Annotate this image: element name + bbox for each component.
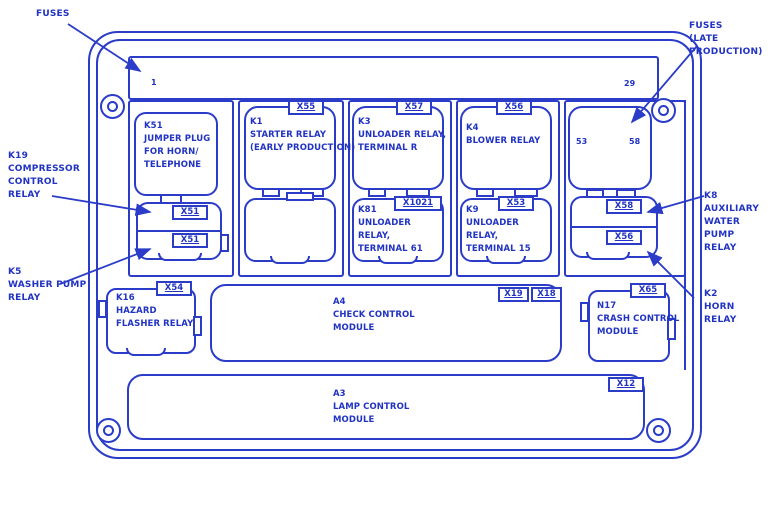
fuse-box-diagram: 1 29 K51 JUMPER PLUG FOR HORN/ TELEPHONE… <box>0 0 770 511</box>
relay-k16-label: K16 HAZARD FLASHER RELAY <box>116 292 193 331</box>
relay-foot <box>368 188 386 197</box>
relay-k4-label: K4 BLOWER RELAY <box>466 122 540 148</box>
relay-bottom-bump <box>270 256 310 264</box>
connector-tag-x56-horn: X56 <box>606 230 642 245</box>
connector-tag-x54: X54 <box>156 281 192 296</box>
relay-bottom-bump <box>378 256 418 264</box>
relay-foot <box>586 189 604 198</box>
screw-icon <box>100 94 125 119</box>
connector-tag-x51-upper: X51 <box>172 205 208 220</box>
connector-tag-x1021: X1021 <box>394 196 442 211</box>
connector-tag-x58: X58 <box>606 199 642 214</box>
relay-bottom-bump <box>126 348 166 356</box>
module-a4-label: A4 CHECK CONTROL MODULE <box>333 296 415 335</box>
module-side-tab <box>98 300 107 318</box>
relay-k9-label: K9 UNLOADER RELAY, TERMINAL 15 <box>466 204 531 256</box>
callout-k19: K19 COMPRESSOR CONTROL RELAY <box>8 150 80 202</box>
screw-icon <box>96 418 121 443</box>
fuse-number-last: 29 <box>624 79 635 89</box>
relay-top-tab <box>286 192 314 201</box>
socket-divider <box>136 230 222 232</box>
module-side-tab <box>580 302 589 322</box>
callout-fuses-late: FUSES (LATE PRODUCTION) <box>689 20 763 59</box>
screw-inner-icon <box>653 425 664 436</box>
late-fuse-number-left: 53 <box>576 137 587 147</box>
relay-foot <box>262 188 280 197</box>
socket-divider <box>570 226 658 228</box>
relay-k51-label: K51 JUMPER PLUG FOR HORN/ TELEPHONE <box>144 120 210 172</box>
connector-tag-x18: X18 <box>531 287 562 302</box>
socket-bottom-bump <box>586 252 630 260</box>
fuse-strip <box>128 56 659 100</box>
screw-inner-icon <box>107 101 118 112</box>
relay-foot <box>476 188 494 197</box>
relay-k81-label: K81 UNLOADER RELAY, TERMINAL 61 <box>358 204 423 256</box>
socket-bottom-bump <box>158 253 202 261</box>
late-fuse-number-right: 58 <box>629 137 640 147</box>
connector-tag-x56-blower: X56 <box>496 100 532 115</box>
relay-k4 <box>460 106 552 190</box>
screw-inner-icon <box>658 105 669 116</box>
relay-bottom-bump <box>486 256 526 264</box>
connector-tag-x55: X55 <box>288 100 324 115</box>
callout-k5: K5 WASHER PUMP RELAY <box>8 266 86 305</box>
connector-tag-x12: X12 <box>608 377 644 392</box>
socket-side-tab <box>220 234 229 252</box>
k51-connector-tab <box>160 194 182 204</box>
connector-tag-x53: X53 <box>498 196 534 211</box>
connector-tag-x19: X19 <box>498 287 529 302</box>
module-a3-label: A3 LAMP CONTROL MODULE <box>333 388 409 427</box>
panel-right-edge-line <box>684 100 686 370</box>
relay-foot <box>616 189 636 198</box>
screw-icon <box>651 98 676 123</box>
connector-tag-x65: X65 <box>630 283 666 298</box>
callout-fuses: FUSES <box>36 8 70 21</box>
late-fuse-block <box>568 106 652 190</box>
connector-tag-x51-lower: X51 <box>172 233 208 248</box>
fuse-number-first: 1 <box>151 78 157 88</box>
module-side-tab <box>193 316 202 336</box>
connector-tag-x57: X57 <box>396 100 432 115</box>
screw-inner-icon <box>103 425 114 436</box>
screw-icon <box>646 418 671 443</box>
callout-k2: K2 HORN RELAY <box>704 288 770 327</box>
relay-k1-label: K1 STARTER RELAY (EARLY PRODUCTION) <box>250 116 355 155</box>
module-n17-label: N17 CRASH CONTROL MODULE <box>597 300 679 339</box>
relay-unlabeled <box>244 198 336 262</box>
callout-k8: K8 AUXILIARY WATER PUMP RELAY <box>704 190 770 255</box>
relay-k3-label: K3 UNLOADER RELAY, TERMINAL R <box>358 116 446 155</box>
